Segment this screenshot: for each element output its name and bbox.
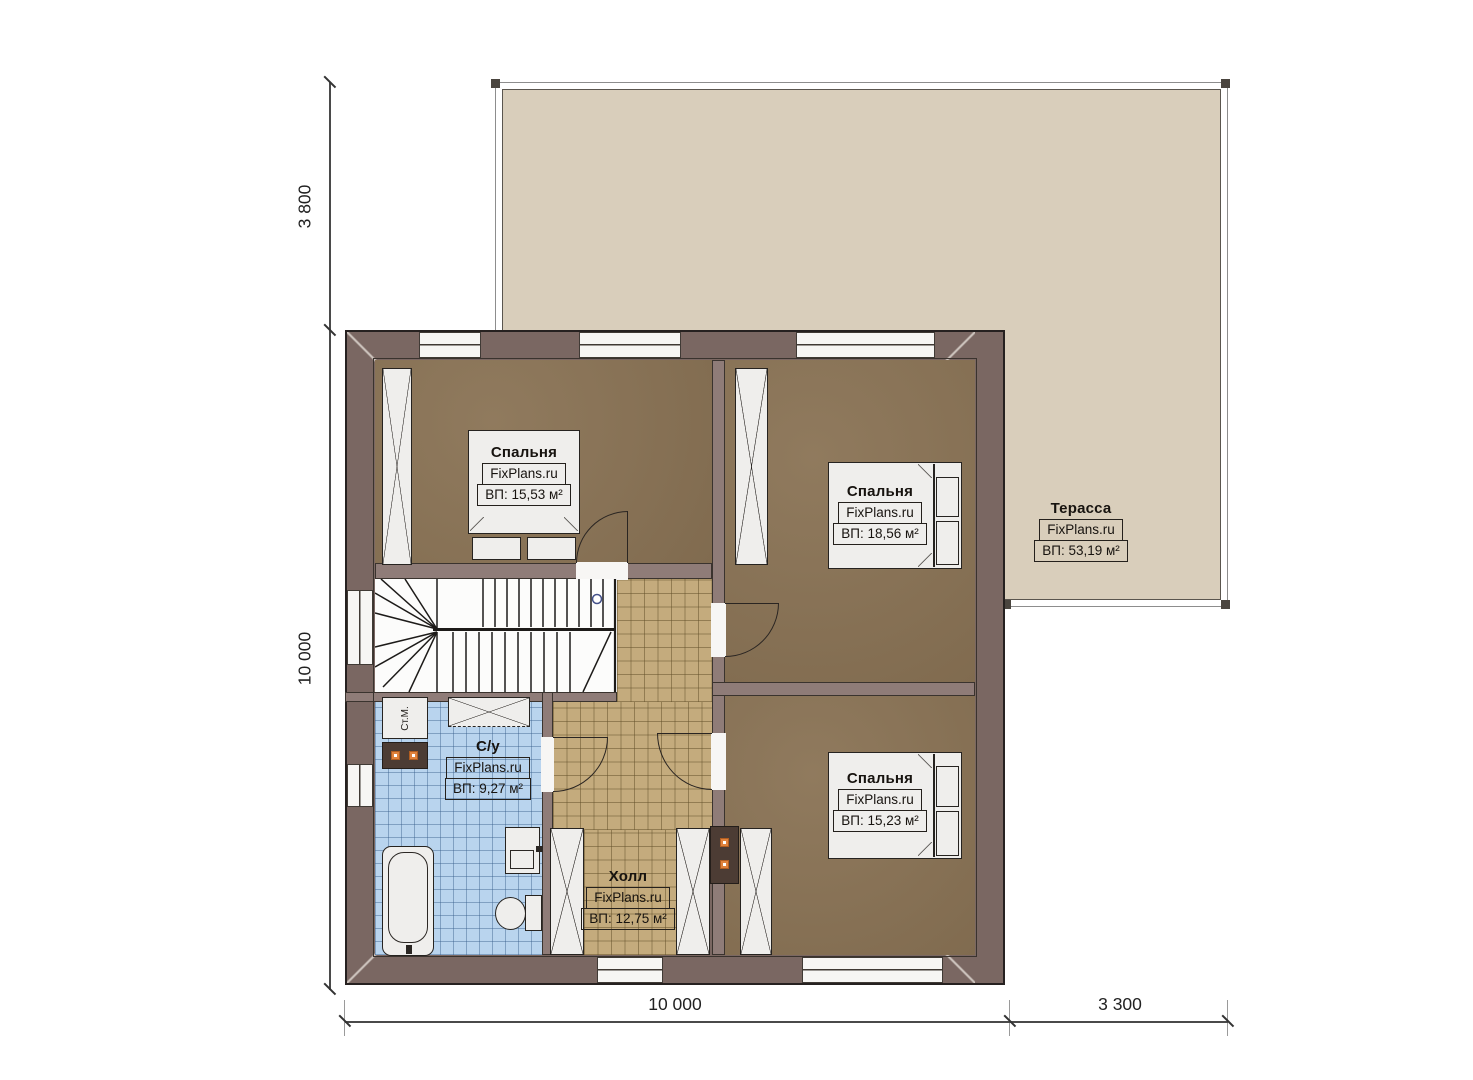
bed-fold-mark bbox=[918, 842, 932, 856]
wardrobe-bedroom2 bbox=[735, 368, 768, 565]
vent-shaft bbox=[448, 697, 530, 727]
bathroom-label: С/у FixPlans.ru ВП: 9,27 м² bbox=[418, 738, 558, 800]
window-bottom-bedroom3 bbox=[802, 957, 943, 983]
door-opening-bedroom3 bbox=[711, 733, 726, 790]
floor-plan: Терасса FixPlans.ru ВП: 53,19 м² bbox=[0, 0, 1473, 1080]
towel-rail-duct bbox=[409, 751, 418, 760]
terrace-post bbox=[491, 79, 500, 88]
wall-bedroom1-hall bbox=[375, 563, 712, 579]
window-bottom-hall bbox=[597, 957, 663, 983]
bathtub bbox=[382, 846, 434, 956]
room-name: Спальня bbox=[847, 483, 913, 500]
bed-fold-mark bbox=[470, 517, 484, 531]
sink bbox=[505, 827, 540, 874]
dimension-bottom-right: 3 300 bbox=[1080, 994, 1160, 1015]
terrace-label: Терасса FixPlans.ru ВП: 53,19 м² bbox=[1011, 500, 1151, 562]
wall-bedroom2-bedroom3 bbox=[712, 682, 975, 696]
room-area: ВП: 12,75 м² bbox=[581, 908, 675, 930]
room-brand: FixPlans.ru bbox=[838, 789, 922, 811]
terrace-name: Терасса bbox=[1051, 500, 1112, 517]
window-top-2 bbox=[579, 332, 681, 358]
bed-fold-mark bbox=[918, 754, 932, 768]
washing-machine: Ст.М. bbox=[382, 697, 428, 739]
room-brand: FixPlans.ru bbox=[586, 887, 670, 909]
toilet-bowl bbox=[495, 897, 526, 930]
pillow bbox=[527, 537, 576, 560]
room-name: Спальня bbox=[847, 770, 913, 787]
dimension-bottom-left: 10 000 bbox=[630, 994, 720, 1015]
terrace-brand: FixPlans.ru bbox=[1039, 519, 1123, 541]
hall-label: Холл FixPlans.ru ВП: 12,75 м² bbox=[558, 868, 698, 930]
dimension-line-bottom bbox=[345, 1021, 1228, 1023]
dimension-left-upper: 3 800 bbox=[295, 172, 316, 242]
window-left-stairs bbox=[347, 590, 373, 665]
terrace-post bbox=[1221, 600, 1230, 609]
dimension-left-lower: 10 000 bbox=[295, 619, 316, 699]
pillow bbox=[472, 537, 521, 560]
corner-hatch bbox=[945, 332, 975, 362]
toilet-tank bbox=[525, 895, 542, 931]
corner-hatch bbox=[347, 953, 377, 983]
bathtub-faucet bbox=[406, 945, 412, 954]
room-name: С/у bbox=[476, 738, 500, 755]
room-area: ВП: 15,23 м² bbox=[833, 810, 927, 832]
bedroom-2-label: Спальня FixPlans.ru ВП: 18,56 м² bbox=[810, 483, 950, 545]
corner-hatch bbox=[945, 953, 975, 983]
sink-basin bbox=[510, 850, 534, 869]
sink-faucet bbox=[536, 846, 543, 852]
chimney-flue bbox=[710, 826, 739, 884]
bathtub-basin bbox=[388, 852, 428, 943]
towel-rail-duct bbox=[391, 751, 400, 760]
window-top-3 bbox=[796, 332, 935, 358]
bed-fold-mark bbox=[918, 464, 932, 478]
washing-machine-label: Ст.М. bbox=[400, 706, 411, 731]
bedroom-3-label: Спальня FixPlans.ru ВП: 15,23 м² bbox=[810, 770, 950, 832]
terrace-area: ВП: 53,19 м² bbox=[1034, 540, 1128, 562]
room-area: ВП: 18,56 м² bbox=[833, 523, 927, 545]
dimension-line-left bbox=[329, 82, 331, 990]
terrace-post bbox=[1221, 79, 1230, 88]
room-brand: FixPlans.ru bbox=[838, 502, 922, 524]
wardrobe-bedroom1 bbox=[382, 368, 412, 565]
room-name: Холл bbox=[609, 868, 647, 885]
staircase bbox=[375, 579, 617, 692]
bed-fold-mark bbox=[918, 553, 932, 567]
flue-duct bbox=[720, 860, 729, 869]
room-area: ВП: 15,53 м² bbox=[477, 484, 571, 506]
bed-fold-mark bbox=[564, 517, 578, 531]
room-area: ВП: 9,27 м² bbox=[445, 778, 531, 800]
window-left-bathroom bbox=[347, 764, 373, 807]
room-brand: FixPlans.ru bbox=[482, 463, 566, 485]
room-brand: FixPlans.ru bbox=[446, 757, 530, 779]
corner-hatch bbox=[347, 332, 377, 362]
door-opening-bedroom1 bbox=[576, 562, 628, 580]
door-opening-bedroom2 bbox=[711, 603, 726, 657]
hall-floor-corridor bbox=[617, 579, 712, 702]
room-name: Спальня bbox=[491, 444, 557, 461]
bedroom-1-label: Спальня FixPlans.ru ВП: 15,53 м² bbox=[454, 444, 594, 506]
wardrobe-bedroom3 bbox=[740, 828, 772, 955]
flue-duct bbox=[720, 838, 729, 847]
window-top-1 bbox=[419, 332, 481, 358]
